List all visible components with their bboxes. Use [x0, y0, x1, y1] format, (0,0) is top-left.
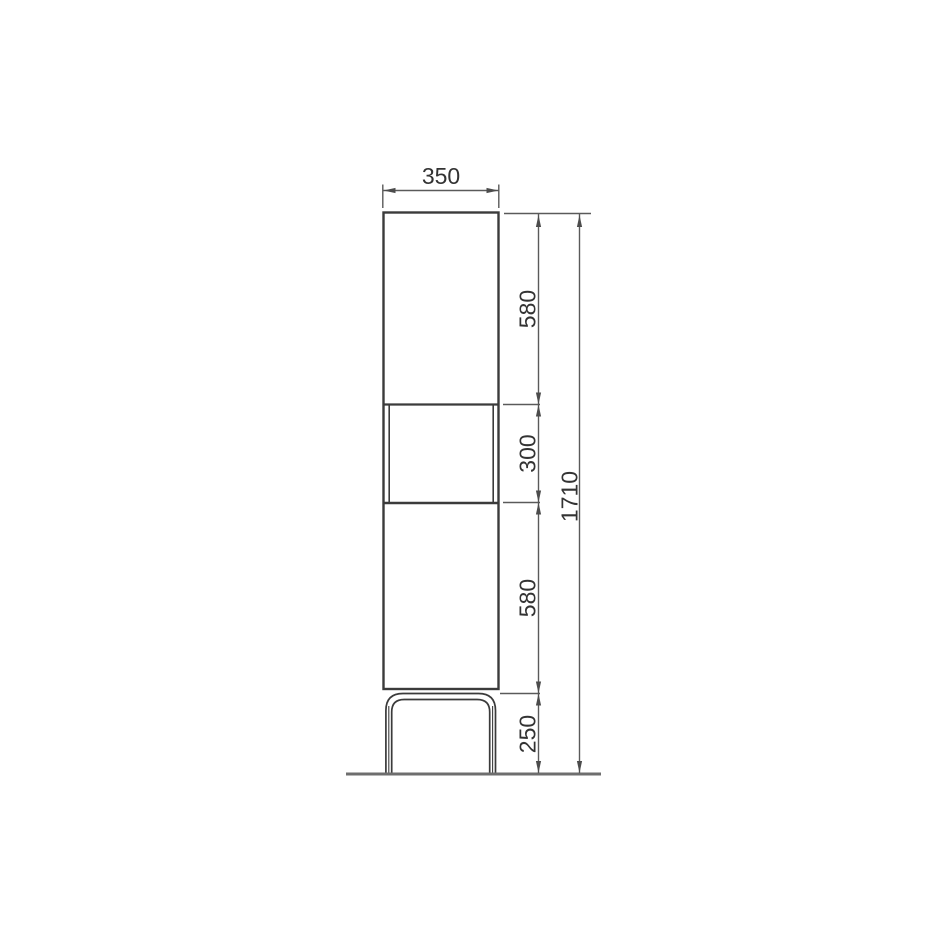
arrow-down — [536, 761, 541, 773]
arrow-down — [577, 761, 582, 773]
arrow-down — [536, 682, 541, 694]
overall-height-label: 1710 — [557, 471, 583, 522]
arrow-up — [536, 694, 541, 706]
stand-inner-tube — [392, 700, 490, 774]
segment-label-bottom-580: 580 — [515, 579, 541, 617]
width-dimension: 350 — [383, 163, 499, 208]
arrow-up — [536, 405, 541, 417]
arrow-up — [536, 503, 541, 515]
cabinet-body-outline — [384, 213, 499, 690]
height-dimensions: 580 300 580 250 1710 — [500, 214, 591, 774]
segment-label-250: 250 — [515, 715, 541, 753]
arrow-up — [536, 215, 541, 227]
width-arrow-right — [487, 188, 499, 193]
cabinet — [384, 213, 499, 690]
drawing-canvas: 350 — [0, 0, 950, 950]
width-dimension-label: 350 — [422, 163, 460, 189]
segment-label-300: 300 — [515, 434, 541, 472]
stand-outer-tube — [386, 694, 496, 774]
arrow-down — [536, 491, 541, 503]
arrow-down — [536, 393, 541, 405]
cabinet-technical-drawing: 350 — [0, 0, 950, 950]
arrow-up — [577, 215, 582, 227]
stand-frame — [386, 694, 496, 774]
segment-label-top-580: 580 — [515, 290, 541, 328]
width-arrow-left — [384, 188, 396, 193]
